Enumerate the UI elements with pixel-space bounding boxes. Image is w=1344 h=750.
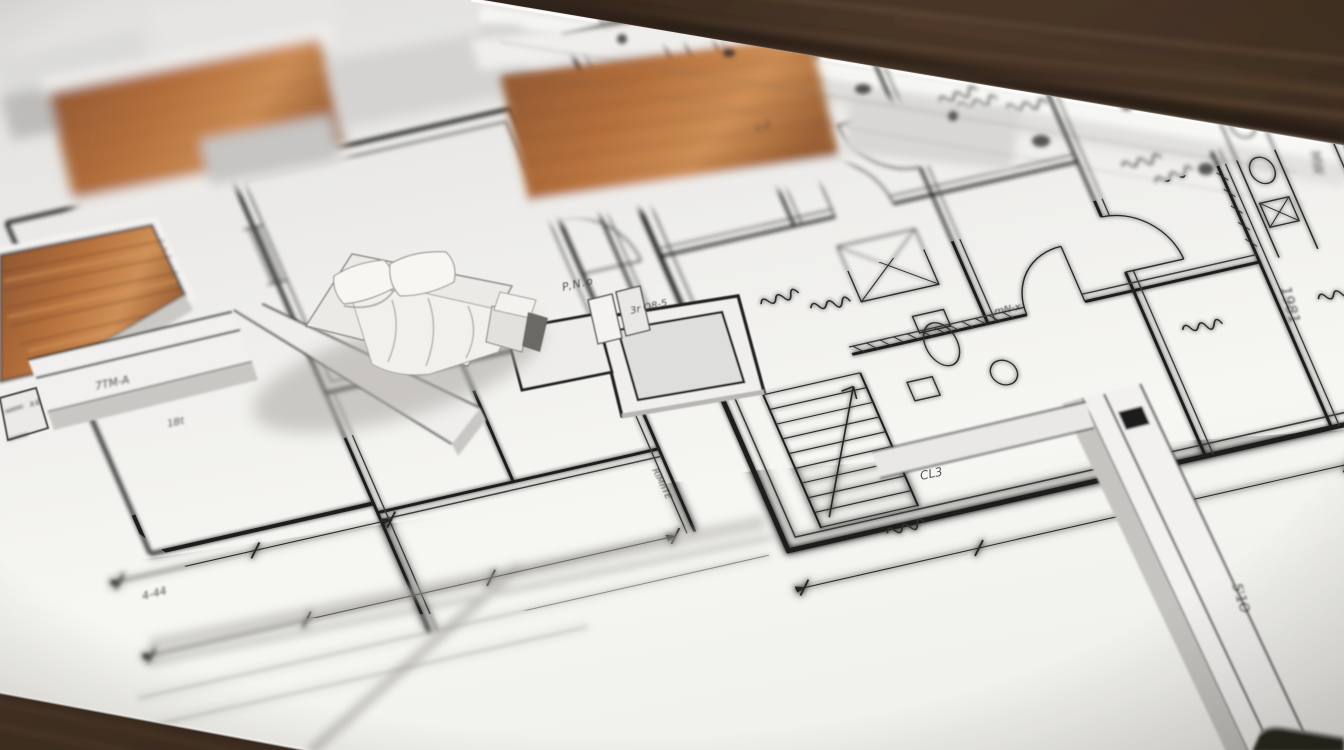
vignette-overlay [0, 0, 1344, 750]
scene-canvas: P,N.o 3r O8-5 CL3 1981 MW 5'1O 7TM-A 1Bt… [0, 0, 1344, 750]
scene-blueprint-photo: P,N.o 3r O8-5 CL3 1981 MW 5'1O 7TM-A 1Bt… [0, 0, 1344, 750]
